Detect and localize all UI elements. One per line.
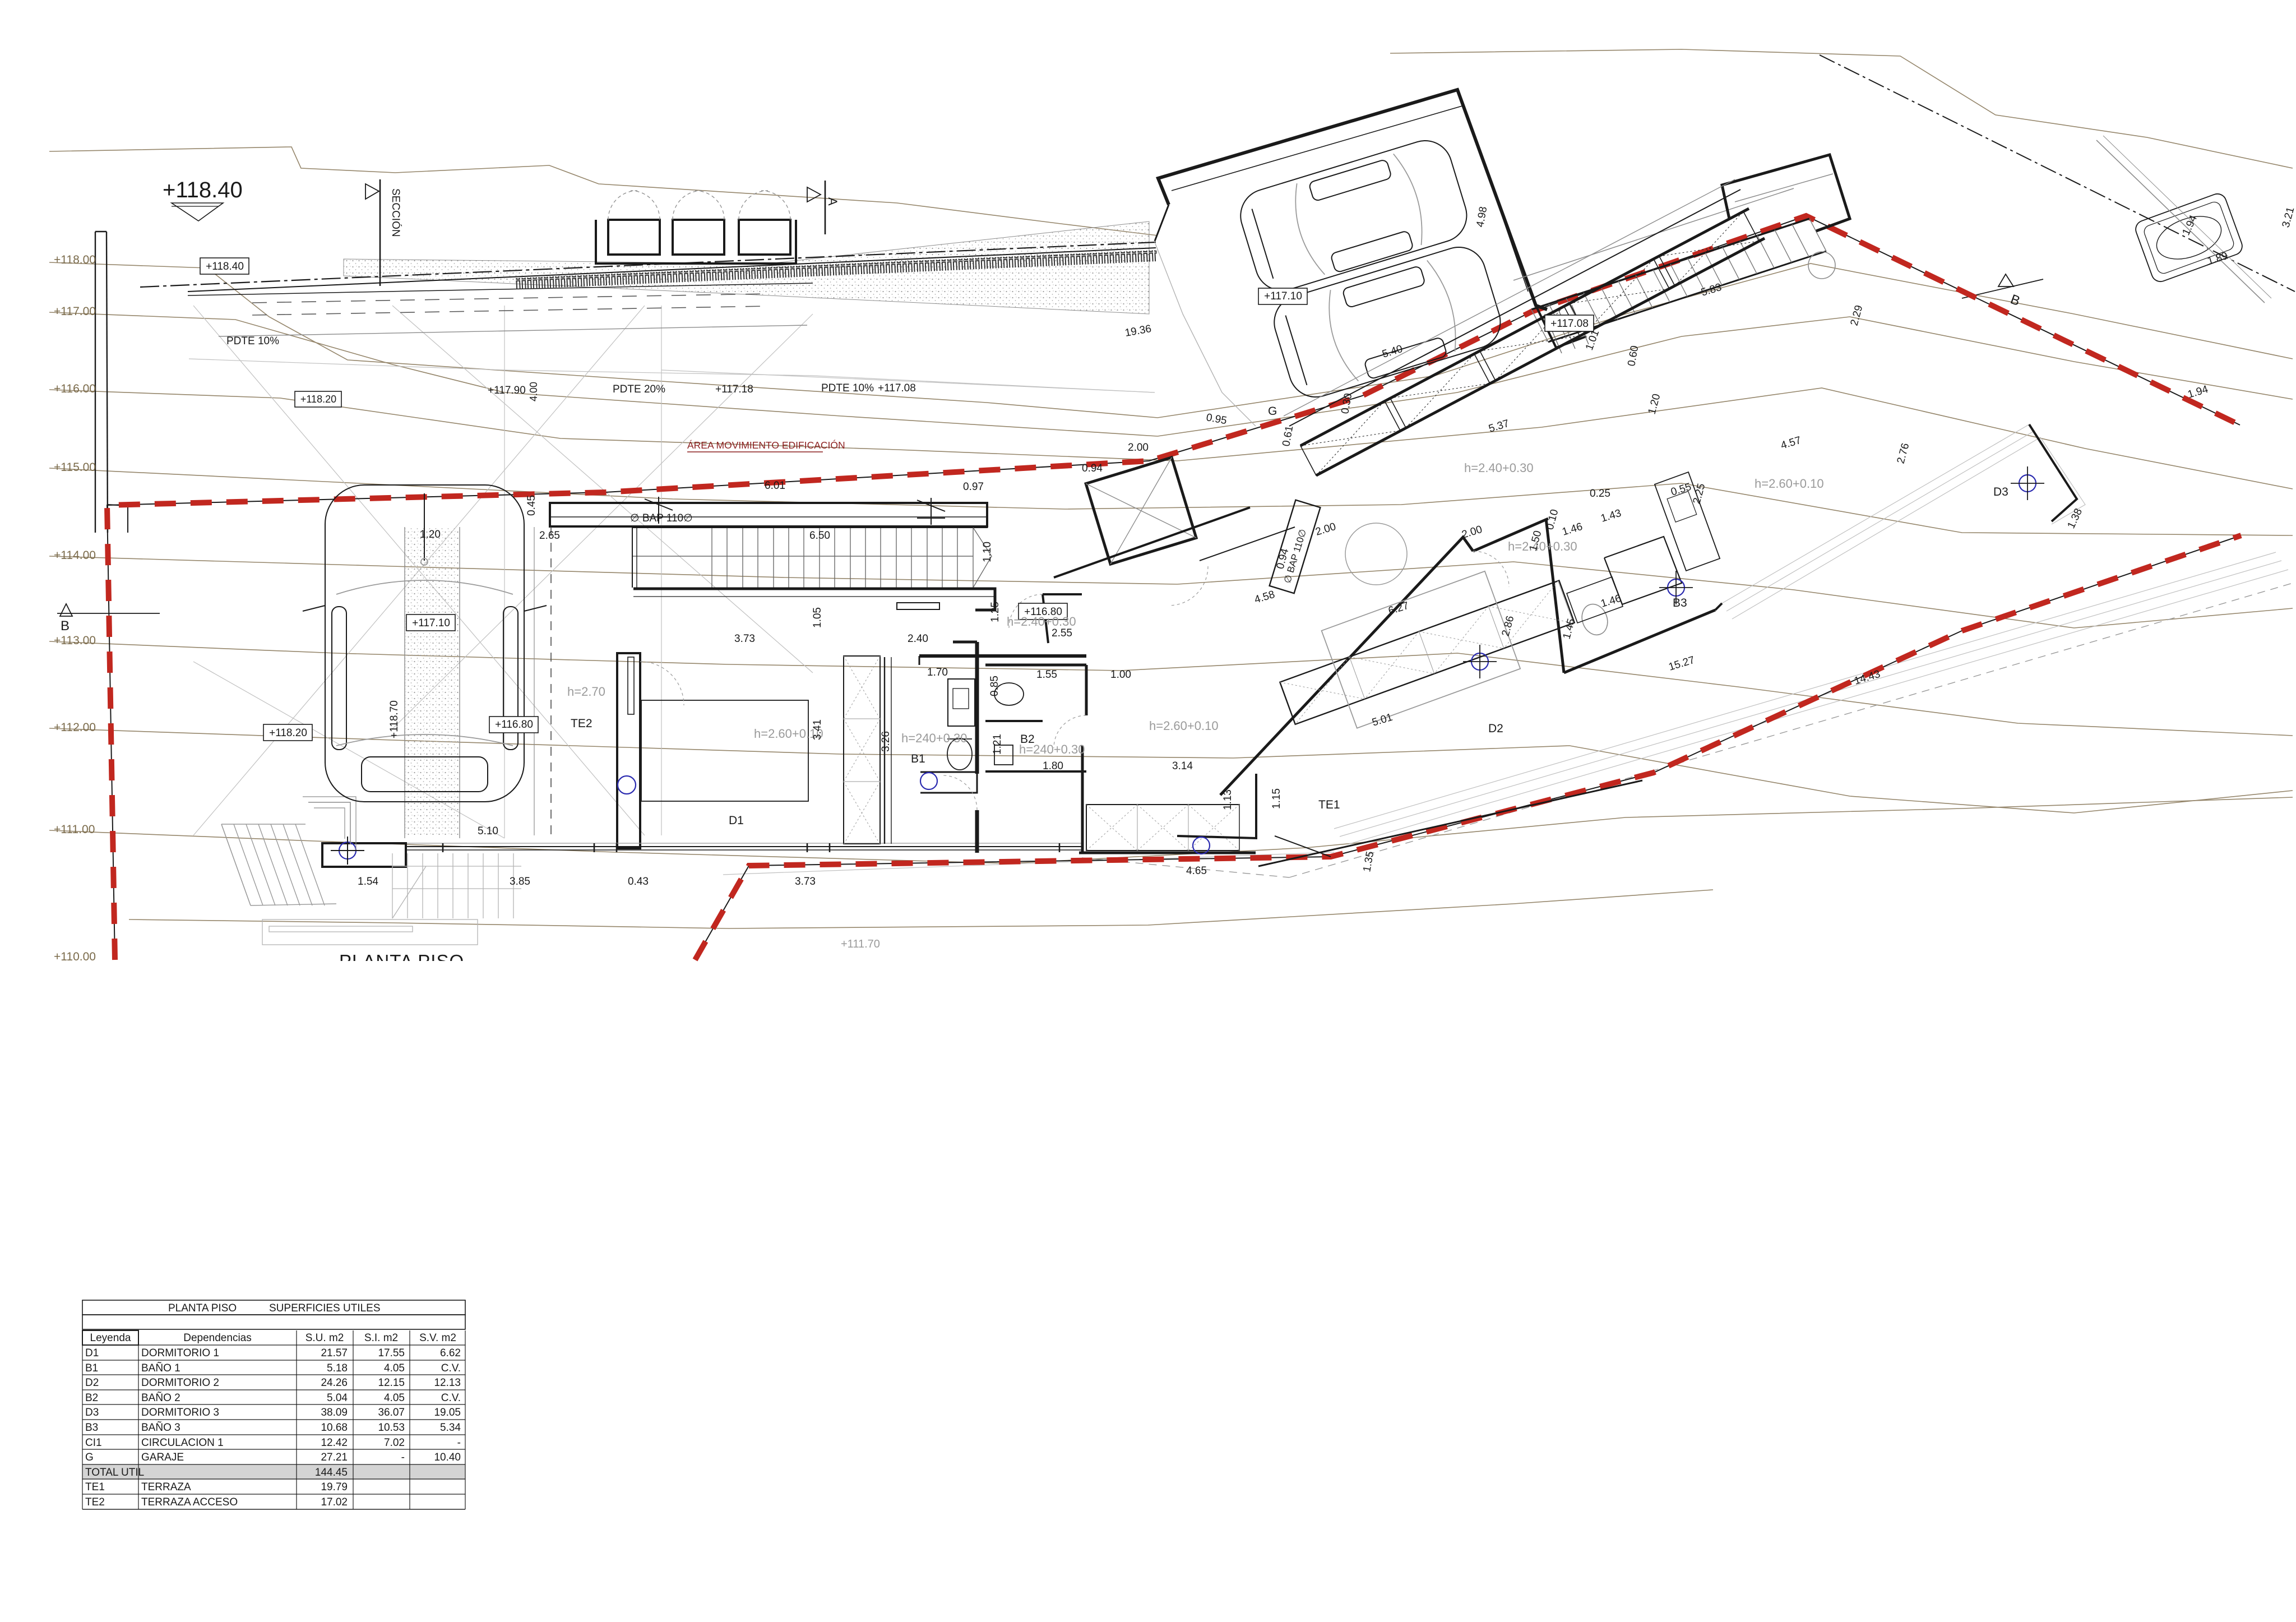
svg-text:D2: D2 bbox=[1488, 722, 1503, 735]
svg-text:D3: D3 bbox=[85, 1407, 99, 1418]
svg-text:2.40: 2.40 bbox=[908, 633, 928, 645]
svg-text:BAÑO 2: BAÑO 2 bbox=[141, 1392, 180, 1404]
svg-text:SUPERFICIES UTILES: SUPERFICIES UTILES bbox=[269, 1302, 381, 1314]
svg-text:S.U. m2: S.U. m2 bbox=[305, 1332, 344, 1344]
svg-text:1.05: 1.05 bbox=[812, 607, 823, 628]
svg-text:12.15: 12.15 bbox=[378, 1377, 405, 1389]
svg-text:+117.18: +117.18 bbox=[715, 383, 753, 395]
svg-text:+117.10: +117.10 bbox=[1264, 290, 1302, 302]
svg-text:1.15: 1.15 bbox=[1271, 788, 1283, 809]
svg-text:PDTE 10%: PDTE 10% bbox=[226, 335, 279, 347]
svg-text:19.79: 19.79 bbox=[321, 1481, 348, 1493]
svg-text:1.21: 1.21 bbox=[992, 734, 1003, 755]
svg-text:+118.40: +118.40 bbox=[206, 261, 244, 272]
svg-text:5.34: 5.34 bbox=[440, 1422, 461, 1434]
svg-text:+117.00: +117.00 bbox=[54, 305, 96, 318]
svg-text:PDTE 10%: PDTE 10% bbox=[821, 382, 874, 394]
svg-text:10.53: 10.53 bbox=[378, 1422, 405, 1434]
svg-text:1.00: 1.00 bbox=[1110, 669, 1131, 681]
svg-text:3.85: 3.85 bbox=[510, 876, 530, 888]
svg-text:4.05: 4.05 bbox=[384, 1362, 405, 1374]
svg-text:DORMITORIO 2: DORMITORIO 2 bbox=[141, 1377, 219, 1389]
svg-text:h=2.60+0.10: h=2.60+0.10 bbox=[1149, 719, 1219, 733]
svg-text:+112.00: +112.00 bbox=[54, 721, 96, 734]
svg-text:1.25: 1.25 bbox=[989, 602, 1001, 622]
svg-text:h=2.40+0.30: h=2.40+0.30 bbox=[1007, 614, 1076, 629]
svg-text:TE2: TE2 bbox=[85, 1496, 105, 1508]
svg-text:h=240+0.30: h=240+0.30 bbox=[901, 731, 967, 745]
svg-text:1.70: 1.70 bbox=[927, 667, 948, 678]
svg-text:10.40: 10.40 bbox=[434, 1452, 461, 1463]
svg-text:+117.90: +117.90 bbox=[488, 385, 526, 396]
svg-text:S.V. m2: S.V. m2 bbox=[419, 1332, 456, 1344]
svg-text:24.26: 24.26 bbox=[321, 1377, 348, 1389]
svg-text:12.13: 12.13 bbox=[434, 1377, 461, 1389]
svg-text:38.09: 38.09 bbox=[321, 1407, 348, 1418]
svg-text:h=240+0.30: h=240+0.30 bbox=[1019, 742, 1085, 756]
svg-text:21.57: 21.57 bbox=[321, 1347, 348, 1359]
svg-text:PDTE 20%: PDTE 20% bbox=[613, 383, 665, 395]
svg-text:CI1: CI1 bbox=[85, 1437, 102, 1449]
svg-text:5.10: 5.10 bbox=[478, 825, 498, 837]
svg-text:G: G bbox=[1268, 405, 1277, 418]
svg-text:h=2.60+0.10: h=2.60+0.10 bbox=[1755, 477, 1824, 491]
svg-text:2.00: 2.00 bbox=[1128, 442, 1149, 454]
svg-text:2.55: 2.55 bbox=[1052, 627, 1072, 639]
svg-text:17.55: 17.55 bbox=[378, 1347, 405, 1359]
svg-text:+111.00: +111.00 bbox=[54, 823, 95, 836]
svg-text:+118.00: +118.00 bbox=[54, 253, 96, 266]
svg-text:C.V.: C.V. bbox=[441, 1362, 461, 1374]
svg-text:DORMITORIO 1: DORMITORIO 1 bbox=[141, 1347, 219, 1359]
svg-text:19.05: 19.05 bbox=[434, 1407, 461, 1418]
svg-text:4.65: 4.65 bbox=[1186, 865, 1207, 877]
svg-text:27.21: 27.21 bbox=[321, 1452, 348, 1463]
svg-text:+117.08: +117.08 bbox=[1550, 318, 1589, 330]
svg-text:TERRAZA: TERRAZA bbox=[141, 1481, 191, 1493]
svg-text:1.10: 1.10 bbox=[982, 542, 993, 562]
svg-text:144.45: 144.45 bbox=[315, 1467, 348, 1478]
svg-text:BAÑO 1: BAÑO 1 bbox=[141, 1362, 180, 1374]
svg-text:0.45: 0.45 bbox=[526, 495, 538, 516]
svg-text:2.65: 2.65 bbox=[539, 530, 560, 542]
svg-text:0.97: 0.97 bbox=[963, 481, 984, 493]
svg-text:CIRCULACION 1: CIRCULACION 1 bbox=[141, 1437, 224, 1449]
svg-text:0.85: 0.85 bbox=[989, 676, 1001, 696]
svg-text:3.26: 3.26 bbox=[880, 731, 892, 752]
svg-text:B1: B1 bbox=[85, 1362, 98, 1374]
svg-text:+111.70: +111.70 bbox=[841, 938, 880, 950]
svg-text:0.25: 0.25 bbox=[1590, 488, 1610, 500]
svg-text:B: B bbox=[61, 618, 70, 634]
svg-text:1.80: 1.80 bbox=[1043, 760, 1063, 772]
svg-text:3.73: 3.73 bbox=[734, 633, 755, 645]
svg-text:7.02: 7.02 bbox=[384, 1437, 405, 1449]
svg-text:PLANTA PISO: PLANTA PISO bbox=[168, 1302, 237, 1314]
svg-text:+117.08: +117.08 bbox=[878, 382, 916, 394]
svg-text:5.18: 5.18 bbox=[327, 1362, 348, 1374]
svg-text:10.68: 10.68 bbox=[321, 1422, 348, 1434]
svg-text:5.04: 5.04 bbox=[327, 1392, 348, 1404]
svg-text:BAÑO 3: BAÑO 3 bbox=[141, 1421, 180, 1434]
svg-text:Leyenda: Leyenda bbox=[90, 1332, 131, 1344]
svg-text:G: G bbox=[85, 1452, 94, 1463]
svg-text:3.14: 3.14 bbox=[1172, 760, 1193, 772]
svg-text:h=2.70: h=2.70 bbox=[567, 685, 605, 699]
svg-text:D1: D1 bbox=[85, 1347, 99, 1359]
svg-text:C.V.: C.V. bbox=[441, 1392, 461, 1404]
svg-text:-: - bbox=[457, 1437, 461, 1449]
svg-text:D3: D3 bbox=[1993, 486, 2008, 498]
svg-text:+117.10: +117.10 bbox=[412, 617, 450, 629]
svg-text:1.13: 1.13 bbox=[1222, 789, 1234, 810]
svg-text:B3: B3 bbox=[85, 1422, 98, 1434]
svg-text:+118.20: +118.20 bbox=[269, 727, 307, 739]
svg-text:0.94: 0.94 bbox=[1082, 463, 1103, 474]
svg-text:S.I. m2: S.I. m2 bbox=[364, 1332, 398, 1344]
svg-text:ÁREA MOVIMIENTO EDIFICACIÓN: ÁREA MOVIMIENTO EDIFICACIÓN bbox=[687, 439, 845, 451]
svg-text:Dependencias: Dependencias bbox=[183, 1332, 251, 1344]
svg-text:+118.20: +118.20 bbox=[300, 394, 336, 405]
svg-text:3.73: 3.73 bbox=[795, 876, 816, 888]
svg-text:4.05: 4.05 bbox=[384, 1392, 405, 1404]
svg-text:6.50: 6.50 bbox=[809, 530, 830, 542]
svg-text:36.07: 36.07 bbox=[378, 1407, 405, 1418]
svg-text:+114.00: +114.00 bbox=[54, 549, 96, 562]
svg-text:6.01: 6.01 bbox=[765, 480, 785, 492]
svg-text:h=2.40+0.30: h=2.40+0.30 bbox=[1508, 539, 1577, 553]
svg-text:1.20: 1.20 bbox=[420, 529, 441, 540]
svg-text:B3: B3 bbox=[1673, 597, 1687, 609]
svg-text:+116.00: +116.00 bbox=[54, 382, 96, 395]
svg-text:TERRAZA ACCESO: TERRAZA ACCESO bbox=[141, 1496, 238, 1508]
svg-text:-: - bbox=[401, 1452, 405, 1463]
svg-text:TE1: TE1 bbox=[85, 1481, 105, 1493]
svg-text:B2: B2 bbox=[85, 1392, 98, 1404]
svg-text:4.00: 4.00 bbox=[528, 382, 539, 401]
svg-text:+110.00: +110.00 bbox=[54, 950, 96, 963]
svg-text:DORMITORIO 3: DORMITORIO 3 bbox=[141, 1407, 219, 1418]
svg-text:3.41: 3.41 bbox=[812, 719, 823, 740]
svg-text:+115.00: +115.00 bbox=[54, 461, 96, 474]
svg-text:1.54: 1.54 bbox=[358, 876, 378, 888]
svg-text:+118.70: +118.70 bbox=[388, 700, 400, 738]
svg-text:D2: D2 bbox=[85, 1377, 99, 1389]
svg-text:∅ BAP 110∅: ∅ BAP 110∅ bbox=[630, 512, 693, 524]
svg-text:0.43: 0.43 bbox=[628, 876, 649, 888]
svg-text:1.55: 1.55 bbox=[1036, 669, 1057, 681]
svg-text:+118.40: +118.40 bbox=[163, 178, 243, 202]
svg-text:12.42: 12.42 bbox=[321, 1437, 348, 1449]
svg-text:h=2.40+0.30: h=2.40+0.30 bbox=[1464, 461, 1534, 475]
svg-text:TE1: TE1 bbox=[1318, 798, 1340, 811]
svg-text:D1: D1 bbox=[729, 814, 744, 827]
svg-text:+113.00: +113.00 bbox=[54, 634, 96, 647]
svg-text:SECCIÓN: SECCIÓN bbox=[390, 188, 402, 237]
svg-text:TE2: TE2 bbox=[571, 717, 592, 730]
svg-text:B1: B1 bbox=[911, 752, 925, 765]
svg-text:A: A bbox=[826, 197, 840, 206]
svg-text:+116.80: +116.80 bbox=[495, 719, 533, 731]
svg-text:TOTAL UTIL: TOTAL UTIL bbox=[85, 1467, 144, 1478]
svg-text:GARAJE: GARAJE bbox=[141, 1452, 184, 1463]
svg-text:17.02: 17.02 bbox=[321, 1496, 348, 1508]
svg-text:6.62: 6.62 bbox=[440, 1347, 461, 1359]
